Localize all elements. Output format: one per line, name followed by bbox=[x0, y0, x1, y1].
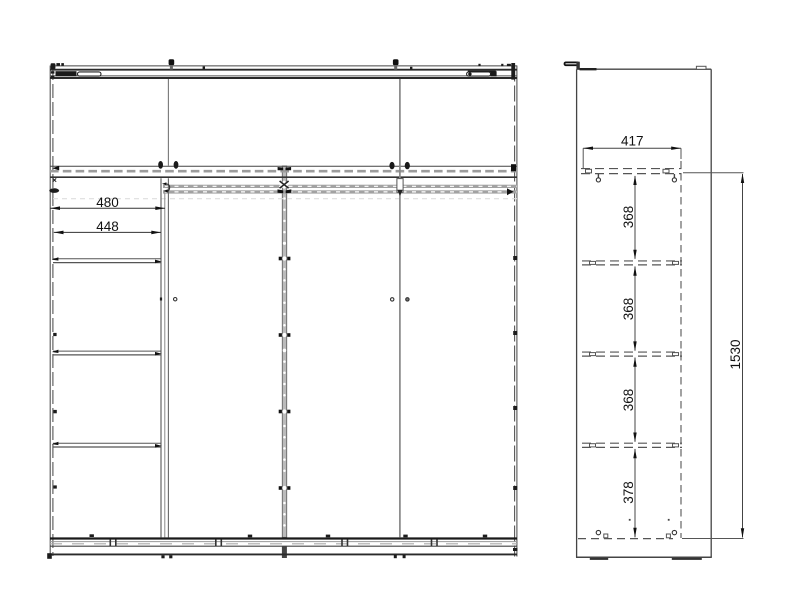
svg-text:417: 417 bbox=[621, 133, 644, 148]
svg-text:368: 368 bbox=[621, 389, 636, 412]
svg-text:378: 378 bbox=[621, 481, 636, 504]
svg-text:368: 368 bbox=[621, 206, 636, 229]
svg-text:1530: 1530 bbox=[728, 339, 743, 369]
svg-text:480: 480 bbox=[96, 195, 119, 210]
svg-text:368: 368 bbox=[621, 298, 636, 321]
svg-text:448: 448 bbox=[96, 219, 119, 234]
